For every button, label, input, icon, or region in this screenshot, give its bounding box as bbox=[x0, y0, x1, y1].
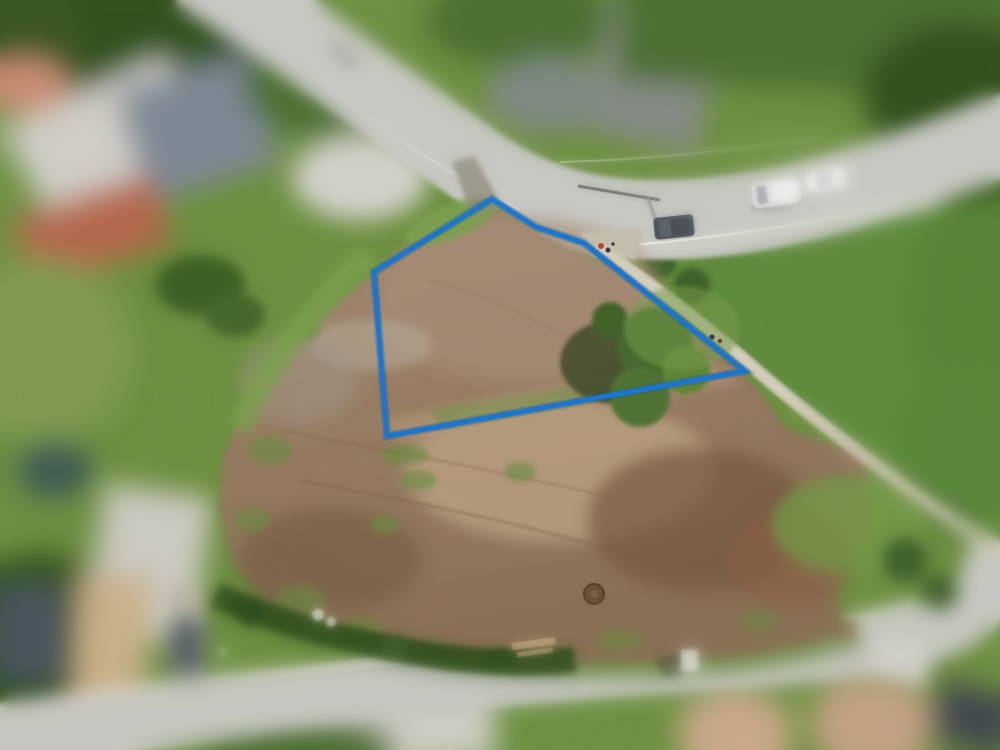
garden-shed bbox=[835, 621, 856, 639]
blurred-car-lower-left bbox=[170, 620, 204, 675]
manhole-cover bbox=[584, 584, 604, 604]
parked-dark-van bbox=[653, 214, 695, 240]
aerial-photo bbox=[0, 0, 1000, 750]
aerial-photo-canvas bbox=[0, 0, 1000, 750]
